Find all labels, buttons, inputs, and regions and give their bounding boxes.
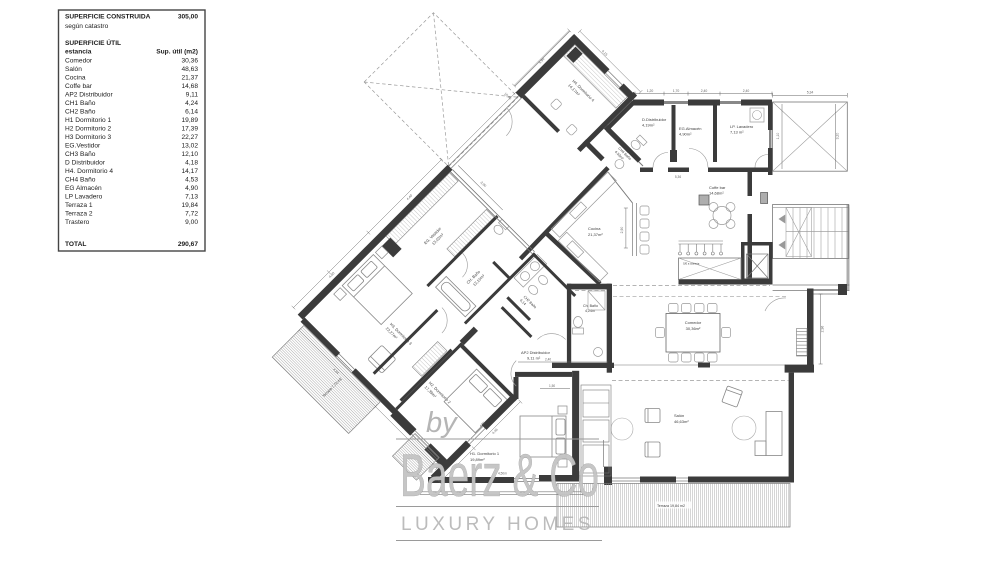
svg-text:7,72: 7,72: [185, 211, 198, 218]
svg-text:2,40: 2,40: [545, 358, 551, 362]
svg-text:SUPERFICIE CONSTRUIDA: SUPERFICIE CONSTRUIDA: [65, 14, 151, 21]
svg-text:estancia: estancia: [65, 49, 92, 56]
svg-text:CH4 Baño: CH4 Baño: [65, 177, 96, 184]
svg-text:13,02: 13,02: [181, 143, 198, 150]
svg-text:Trastero: Trastero: [65, 219, 90, 226]
svg-text:14,68: 14,68: [181, 83, 198, 90]
svg-text:4,18: 4,18: [185, 160, 198, 167]
svg-text:Coffe bar: Coffe bar: [65, 83, 93, 90]
svg-text:según catastro: según catastro: [65, 23, 109, 30]
svg-text:19,84: 19,84: [181, 202, 198, 209]
svg-text:Coffe bar: Coffe bar: [709, 185, 726, 190]
svg-text:AP2 Distribuidor: AP2 Distribuidor: [65, 92, 113, 99]
svg-text:Ch. Baño: Ch. Baño: [583, 304, 598, 308]
svg-text:14,68m²: 14,68m²: [709, 191, 724, 196]
svg-text:Baerz & Co: Baerz & Co: [400, 442, 599, 509]
svg-text:Cocina: Cocina: [65, 75, 86, 82]
svg-text:Sup. útil (m2): Sup. útil (m2): [156, 49, 198, 56]
svg-text:290,67: 290,67: [178, 241, 199, 248]
svg-text:1,70: 1,70: [673, 89, 680, 93]
svg-text:TOTAL: TOTAL: [65, 241, 86, 248]
svg-text:by: by: [426, 407, 458, 439]
svg-text:7,13 m²: 7,13 m²: [730, 130, 744, 135]
svg-text:30,36m²: 30,36m²: [686, 326, 701, 331]
svg-text:Terraza 19,84 m2: Terraza 19,84 m2: [657, 504, 685, 508]
svg-text:S/E a cubierta: S/E a cubierta: [683, 262, 700, 266]
svg-text:EG.Almacén: EG.Almacén: [679, 126, 701, 131]
svg-text:CH3 Baño: CH3 Baño: [65, 151, 96, 158]
svg-text:9,11 m²: 9,11 m²: [527, 356, 541, 361]
svg-text:4,24m: 4,24m: [585, 309, 595, 313]
svg-text:H2 Dormitorio 2: H2 Dormitorio 2: [65, 126, 112, 133]
svg-text:9,00: 9,00: [185, 219, 198, 226]
svg-text:LP. Lavadero: LP. Lavadero: [730, 124, 754, 129]
svg-text:LUXURY HOMES: LUXURY HOMES: [401, 514, 597, 535]
svg-text:EG.Vestidor: EG.Vestidor: [65, 143, 101, 150]
svg-text:H4. Dormitorio 4: H4. Dormitorio 4: [65, 168, 113, 175]
svg-text:1,50: 1,50: [549, 384, 555, 388]
svg-text:Terraza 1: Terraza 1: [65, 202, 93, 209]
svg-text:2,90: 2,90: [620, 227, 624, 234]
svg-text:5,36: 5,36: [675, 175, 681, 179]
svg-text:Terraza 2: Terraza 2: [65, 211, 93, 218]
svg-text:1,10: 1,10: [776, 133, 780, 140]
svg-text:4,19m²: 4,19m²: [642, 123, 655, 128]
svg-text:22,27: 22,27: [181, 134, 198, 141]
svg-text:H3 Dormitorio 3: H3 Dormitorio 3: [65, 134, 112, 141]
svg-text:Comedor: Comedor: [65, 58, 93, 65]
svg-text:Cocina: Cocina: [588, 226, 601, 231]
svg-text:12,10: 12,10: [181, 151, 198, 158]
svg-text:4,53: 4,53: [185, 177, 198, 184]
svg-text:7,13: 7,13: [185, 194, 198, 201]
svg-text:CH2 Baño: CH2 Baño: [65, 109, 96, 116]
svg-text:2,40: 2,40: [701, 89, 708, 93]
svg-text:EG Almacén: EG Almacén: [65, 185, 102, 192]
svg-text:6,14: 6,14: [185, 109, 198, 116]
svg-text:D.Distribuidor: D.Distribuidor: [642, 117, 667, 122]
svg-text:21,37: 21,37: [181, 75, 198, 82]
svg-text:1,20: 1,20: [647, 89, 654, 93]
svg-text:LP Lavadero: LP Lavadero: [65, 194, 103, 201]
svg-text:AP2 Distribuidor: AP2 Distribuidor: [521, 350, 551, 355]
svg-text:48,63: 48,63: [181, 66, 198, 73]
svg-text:46,63m²: 46,63m²: [674, 419, 689, 424]
svg-text:9,11: 9,11: [186, 92, 199, 99]
svg-text:19,89: 19,89: [181, 117, 198, 124]
svg-text:17,39: 17,39: [181, 126, 198, 133]
svg-text:4,90: 4,90: [185, 185, 198, 192]
svg-text:30,36: 30,36: [181, 58, 198, 65]
svg-text:14,17: 14,17: [181, 168, 198, 175]
svg-text:4,24: 4,24: [185, 100, 198, 107]
svg-text:Salón: Salón: [65, 66, 82, 73]
svg-text:Comedor: Comedor: [685, 320, 702, 325]
svg-text:SUPERFICIE ÚTIL: SUPERFICIE ÚTIL: [65, 38, 121, 47]
svg-text:4,90m²: 4,90m²: [679, 132, 692, 137]
svg-text:5,34: 5,34: [807, 91, 814, 95]
svg-text:305,00: 305,00: [178, 14, 199, 21]
svg-text:Salón: Salón: [674, 413, 684, 418]
svg-text:CH1 Baño: CH1 Baño: [65, 100, 96, 107]
svg-text:2,40: 2,40: [743, 89, 750, 93]
svg-text:2,96: 2,96: [821, 326, 825, 333]
svg-text:3,20: 3,20: [836, 133, 840, 140]
svg-text:D Distribuidor: D Distribuidor: [65, 160, 106, 167]
svg-text:H1 Dormitorio 1: H1 Dormitorio 1: [65, 117, 112, 124]
svg-text:21,37m²: 21,37m²: [588, 232, 603, 237]
